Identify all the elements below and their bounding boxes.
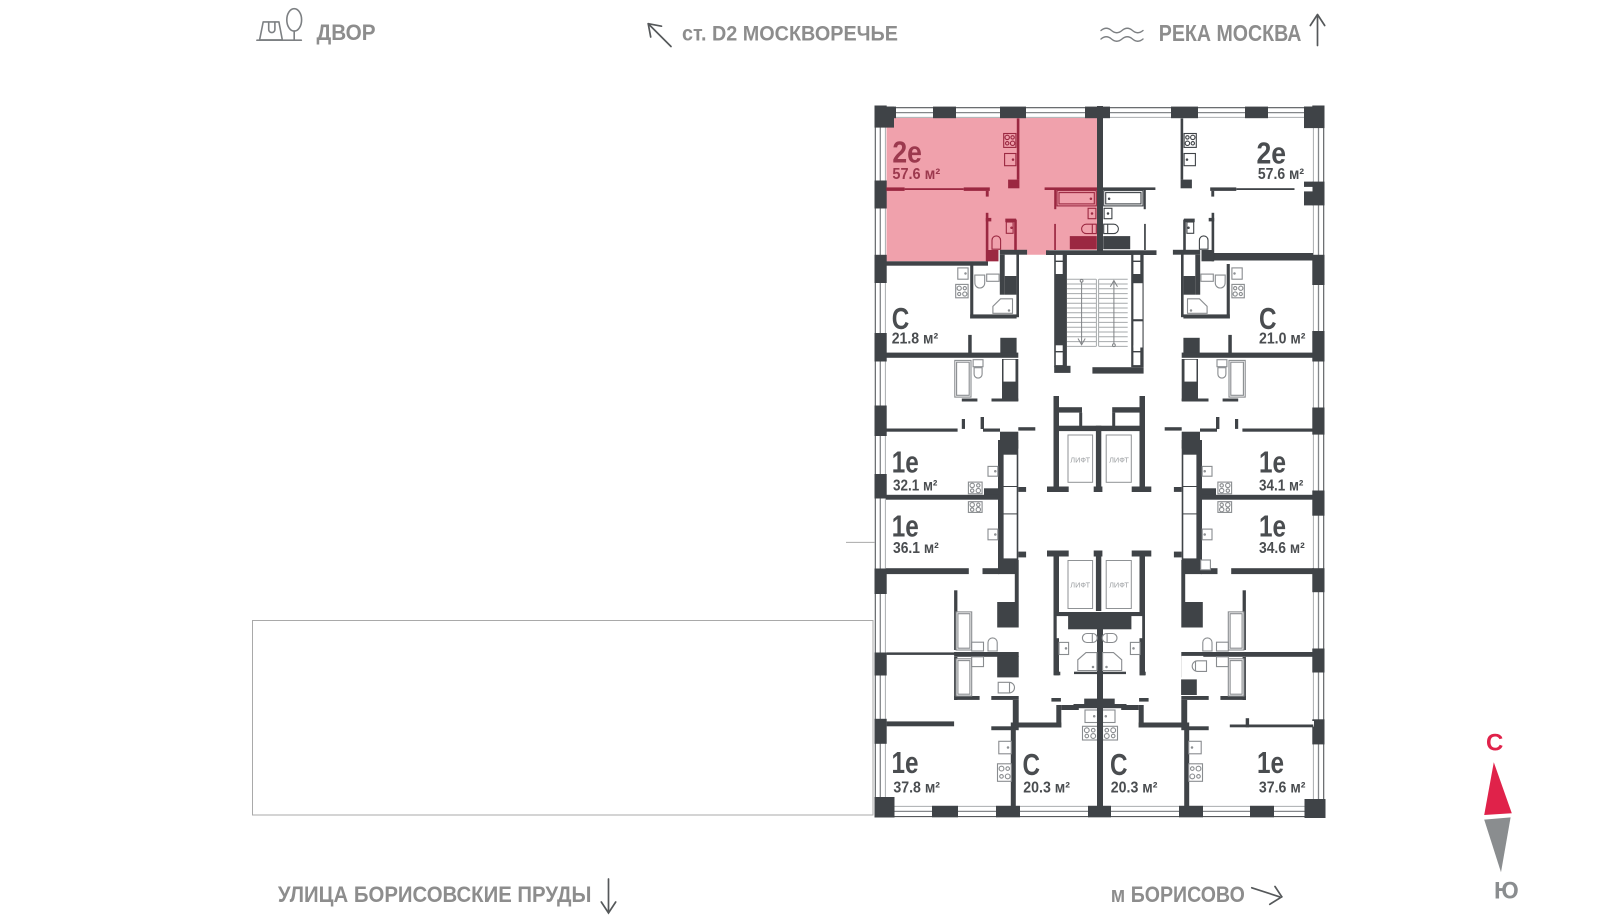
svg-text:57.6 м²: 57.6 м² bbox=[892, 166, 940, 183]
svg-text:ЛИФТ: ЛИФТ bbox=[1070, 457, 1091, 464]
svg-text:РЕКА МОСКВА: РЕКА МОСКВА bbox=[1159, 20, 1302, 46]
svg-text:С: С bbox=[1110, 747, 1128, 782]
svg-text:1е: 1е bbox=[892, 745, 919, 780]
svg-text:2е: 2е bbox=[892, 135, 922, 170]
svg-text:1е: 1е bbox=[1257, 745, 1284, 780]
svg-text:37.8 м²: 37.8 м² bbox=[893, 780, 940, 797]
svg-text:С: С bbox=[1486, 730, 1503, 757]
svg-text:С: С bbox=[1023, 747, 1041, 782]
svg-text:21.0 м²: 21.0 м² bbox=[1259, 330, 1306, 347]
svg-text:37.6 м²: 37.6 м² bbox=[1259, 780, 1306, 797]
svg-text:Ю: Ю bbox=[1494, 878, 1519, 905]
svg-text:УЛИЦА БОРИСОВСКИЕ ПРУДЫ: УЛИЦА БОРИСОВСКИЕ ПРУДЫ bbox=[278, 882, 592, 907]
svg-text:20.3 м²: 20.3 м² bbox=[1111, 780, 1158, 797]
svg-text:1е: 1е bbox=[892, 445, 919, 480]
svg-text:ЛИФТ: ЛИФТ bbox=[1109, 457, 1130, 464]
svg-text:ст. D2 МОСКВОРЕЧЬЕ: ст. D2 МОСКВОРЕЧЬЕ bbox=[682, 22, 898, 46]
svg-text:ЛИФТ: ЛИФТ bbox=[1070, 583, 1091, 590]
svg-text:57.6 м²: 57.6 м² bbox=[1258, 166, 1304, 183]
svg-text:36.1 м²: 36.1 м² bbox=[893, 540, 939, 557]
svg-text:20.3 м²: 20.3 м² bbox=[1023, 780, 1070, 797]
svg-text:ЛИФТ: ЛИФТ bbox=[1109, 583, 1130, 590]
svg-text:м БОРИСОВО: м БОРИСОВО bbox=[1111, 882, 1245, 907]
svg-text:ДВОР: ДВОР bbox=[317, 20, 376, 45]
svg-text:34.1 м²: 34.1 м² bbox=[1259, 477, 1303, 494]
svg-text:34.6 м²: 34.6 м² bbox=[1259, 540, 1305, 557]
svg-text:21.8 м²: 21.8 м² bbox=[892, 330, 939, 347]
svg-text:1е: 1е bbox=[1259, 509, 1286, 544]
svg-text:32.1 м²: 32.1 м² bbox=[893, 477, 937, 494]
svg-text:1е: 1е bbox=[1259, 445, 1286, 480]
svg-text:1е: 1е bbox=[892, 509, 919, 544]
